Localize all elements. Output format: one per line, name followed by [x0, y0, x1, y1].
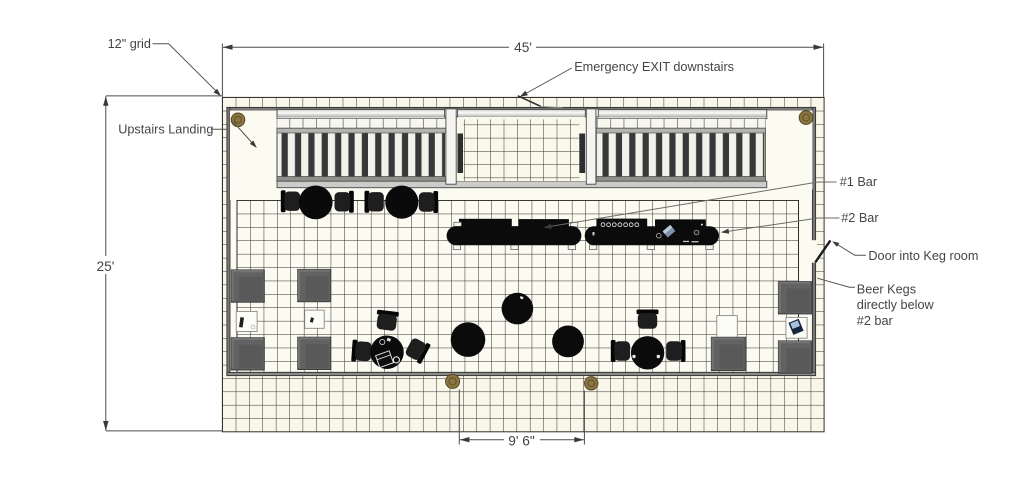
svg-text:directly below: directly below: [857, 298, 935, 312]
svg-text:Emergency EXIT downstairs: Emergency EXIT downstairs: [574, 60, 734, 74]
svg-text:#1 Bar: #1 Bar: [840, 175, 878, 189]
svg-text:#2 Bar: #2 Bar: [841, 211, 879, 225]
svg-text:Door into Keg room: Door into Keg room: [868, 249, 978, 263]
svg-text:Upstairs Landing: Upstairs Landing: [118, 123, 213, 137]
svg-text:#2 bar: #2 bar: [857, 314, 894, 328]
svg-text:9' 6": 9' 6": [508, 434, 535, 449]
svg-text:12" grid: 12" grid: [108, 37, 151, 51]
svg-text:Beer Kegs: Beer Kegs: [857, 283, 916, 297]
svg-text:25': 25': [97, 259, 115, 274]
svg-text:45': 45': [514, 40, 532, 55]
